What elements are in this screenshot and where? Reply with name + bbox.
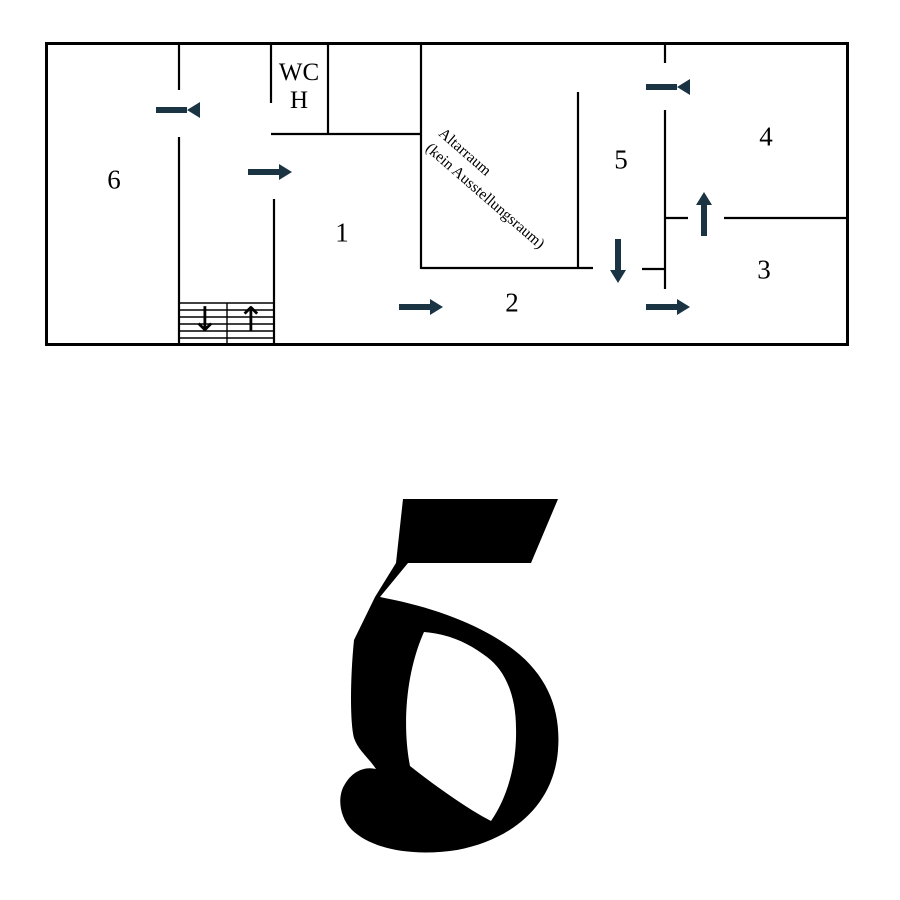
page-number-5-path (340, 499, 558, 853)
page-number-5-glyph (0, 0, 900, 900)
page: 6 1 2 3 4 5 WC H Altarraum (kein Ausstel… (0, 0, 900, 900)
